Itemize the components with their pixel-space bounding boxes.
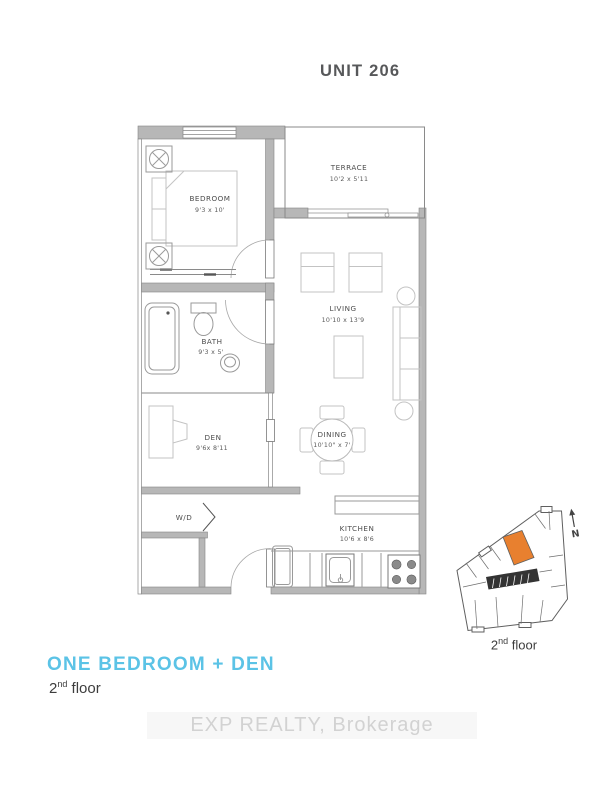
bedroom-label: BEDROOM — [189, 194, 230, 203]
bedroom-closet-sliders — [150, 270, 236, 275]
keyplan-floor-word: floor — [512, 637, 537, 652]
laundry-bifold-door — [203, 503, 215, 531]
stove — [388, 555, 420, 588]
keyplan-ordinal-suffix: nd — [498, 636, 508, 646]
kitchen-label: KITCHEN — [340, 524, 375, 533]
toilet — [191, 303, 216, 336]
bath-door — [226, 300, 275, 344]
walls — [138, 126, 426, 594]
dining-table — [311, 419, 353, 461]
terrace-sliding-door — [308, 209, 418, 217]
building-outline — [457, 511, 568, 631]
floorplan-sheet: BEDROOM 9'3 x 10' TERRACE 10'2 x 5'11 LI… — [0, 0, 612, 792]
armchair — [349, 253, 382, 292]
north-label: N — [571, 528, 581, 540]
desk-and-chair — [149, 406, 187, 458]
terrace-label: TERRACE — [330, 163, 367, 172]
living-label: LIVING — [329, 304, 356, 313]
north-arrow-icon: N — [567, 508, 580, 540]
plan-name-heading: ONE BEDROOM + DEN — [47, 654, 275, 676]
floor-label: 2nd floor — [49, 679, 101, 697]
building-notch — [472, 627, 484, 632]
dining-dims: 10'10" x 7' — [313, 442, 350, 449]
bathtub — [145, 303, 179, 374]
left-wall — [138, 139, 142, 594]
floor-plan: BEDROOM 9'3 x 10' TERRACE 10'2 x 5'11 LI… — [138, 126, 426, 594]
brokerage-watermark: EXP REALTY, Brokerage — [147, 712, 477, 739]
kitchen-dims: 10'6 x 8'6 — [340, 536, 374, 543]
laundry-label: W/D — [176, 513, 193, 522]
dining-set — [300, 406, 365, 474]
kitchen-sink — [326, 554, 354, 586]
right-wall — [419, 208, 426, 594]
armchair — [301, 253, 334, 292]
entry-door — [231, 548, 275, 587]
dining-label: DINING — [317, 430, 346, 439]
bath-sink — [221, 354, 240, 372]
floor-word: floor — [72, 680, 101, 697]
sofa — [393, 287, 421, 420]
keyplan-caption: 2nd floor — [468, 636, 560, 652]
living-dims: 10'10 x 13'9 — [322, 317, 365, 324]
nightstand-lamp-icon — [146, 243, 172, 269]
unit-title: UNIT 206 — [320, 62, 400, 81]
bedroom-dims: 9'3 x 10' — [195, 207, 225, 214]
bath-label: BATH — [201, 337, 222, 346]
coffee-table — [334, 336, 363, 378]
den-door — [267, 420, 275, 442]
key-plan: N — [457, 507, 581, 633]
fridge — [273, 546, 293, 587]
building-notch — [541, 507, 552, 513]
terrace-outline — [285, 127, 425, 218]
terrace-dims: 10'2 x 5'11 — [330, 176, 369, 183]
bedroom-window — [183, 127, 236, 138]
den-dims: 9'6x 8'11 — [196, 445, 228, 452]
floor-ordinal-suffix: nd — [57, 679, 67, 689]
nightstand-lamp-icon — [146, 146, 172, 172]
room-labels: BEDROOM 9'3 x 10' TERRACE 10'2 x 5'11 LI… — [176, 163, 375, 543]
den-label: DEN — [205, 433, 222, 442]
bath-dims: 9'3 x 5' — [198, 349, 224, 356]
